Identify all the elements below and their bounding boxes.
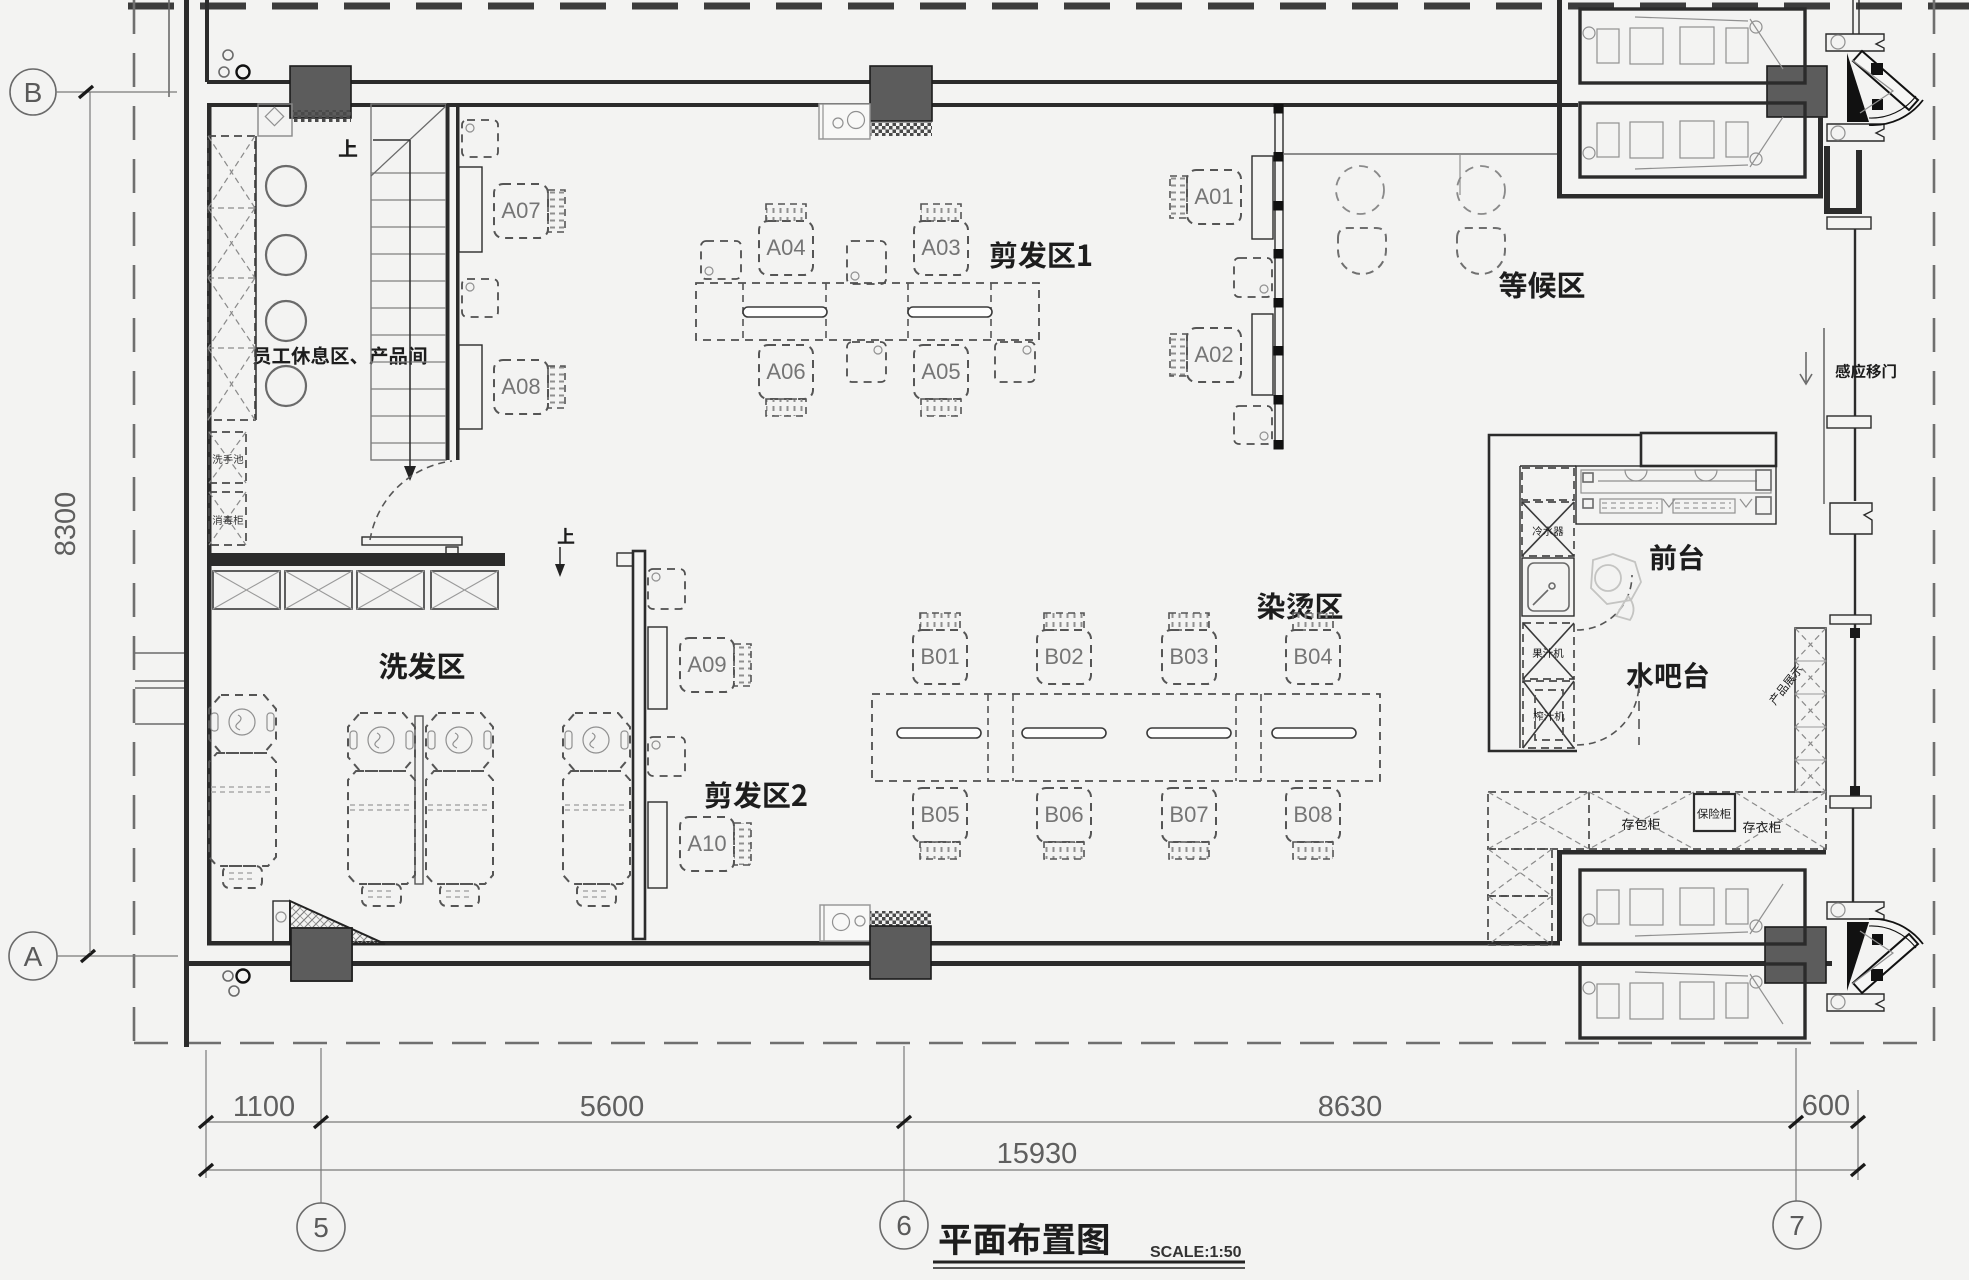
svg-text:A04: A04 [766, 235, 805, 260]
svg-text:1100: 1100 [233, 1091, 295, 1123]
svg-text:A: A [24, 941, 43, 972]
svg-text:B08: B08 [1293, 802, 1332, 827]
svg-text:A10: A10 [687, 831, 726, 856]
svg-text:A06: A06 [766, 359, 805, 384]
svg-text:B01: B01 [920, 644, 959, 669]
svg-text:B06: B06 [1044, 802, 1083, 827]
svg-text:A05: A05 [921, 359, 960, 384]
svg-text:A08: A08 [501, 374, 540, 399]
svg-text:SCALE:1:50: SCALE:1:50 [1150, 1244, 1242, 1261]
svg-text:A03: A03 [921, 235, 960, 260]
svg-text:5600: 5600 [580, 1091, 645, 1123]
svg-text:6: 6 [896, 1210, 912, 1241]
svg-text:B02: B02 [1044, 644, 1083, 669]
svg-text:B05: B05 [920, 802, 959, 827]
svg-text:600: 600 [1802, 1090, 1850, 1122]
svg-text:5: 5 [313, 1212, 329, 1243]
svg-text:A02: A02 [1194, 342, 1233, 367]
svg-text:7: 7 [1789, 1210, 1805, 1241]
svg-text:15930: 15930 [997, 1138, 1078, 1170]
svg-text:A07: A07 [501, 198, 540, 223]
svg-text:B: B [24, 77, 43, 108]
svg-text:B03: B03 [1169, 644, 1208, 669]
svg-text:8630: 8630 [1318, 1091, 1383, 1123]
svg-text:A09: A09 [687, 652, 726, 677]
svg-text:8300: 8300 [50, 492, 82, 557]
svg-text:B07: B07 [1169, 802, 1208, 827]
svg-text:B04: B04 [1293, 644, 1332, 669]
svg-text:A01: A01 [1194, 184, 1233, 209]
